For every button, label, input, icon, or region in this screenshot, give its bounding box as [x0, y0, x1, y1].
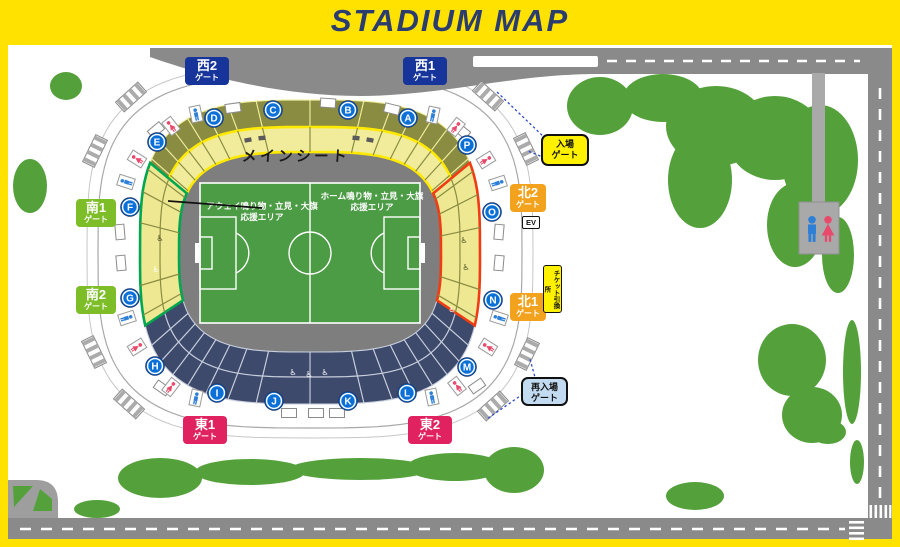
- section-letter: M: [463, 363, 471, 374]
- section-marker-H: H: [146, 357, 165, 376]
- home-area-label-line1: ホーム鳴り物・立見・大旗: [321, 190, 424, 201]
- section-letter: I: [216, 389, 219, 400]
- section-letter: F: [127, 203, 133, 214]
- wheelchair-seat-icon: ♿: [321, 368, 328, 377]
- gate-north1: 北1ゲート: [510, 293, 546, 321]
- section-marker-E: E: [148, 133, 167, 152]
- section-marker-A: A: [399, 109, 418, 128]
- section-letter: O: [488, 208, 496, 219]
- kiosk: [494, 224, 504, 240]
- section-marker-C: C: [264, 101, 283, 120]
- section-marker-M: M: [458, 358, 477, 377]
- kiosk: [309, 409, 324, 418]
- map-canvas: ♿♿♿♿♿♿♿♿ ABCDEFGHIJKLMNOP メインシート アウェイ鳴り物…: [0, 0, 900, 547]
- wheelchair-seat-icon: ♿: [305, 370, 312, 379]
- tree: [758, 324, 826, 396]
- section-letter: G: [126, 294, 134, 305]
- wheelchair-seat-icon: ♿: [462, 263, 469, 272]
- tree: [118, 458, 202, 498]
- section-letter: H: [151, 362, 158, 373]
- tree: [850, 440, 864, 484]
- ticket-exchange-plate: チケット引換所: [543, 265, 562, 313]
- gate-east2: 東2ゲート: [408, 416, 452, 444]
- section-marker-B: B: [339, 101, 358, 120]
- tree: [666, 482, 724, 510]
- section-marker-K: K: [339, 392, 358, 411]
- section-letter: E: [154, 138, 161, 149]
- home-area-label-line2: 応援エリア: [351, 201, 394, 212]
- kiosk: [320, 98, 336, 108]
- section-marker-G: G: [121, 289, 140, 308]
- section-letter: N: [489, 296, 496, 307]
- section-marker-D: D: [205, 109, 224, 128]
- elevator-plate: EV: [522, 216, 540, 229]
- goal-left: [195, 243, 200, 263]
- wheelchair-seat-icon: ♿: [460, 236, 467, 245]
- wheelchair-seat-icon: ♿: [448, 305, 455, 314]
- kiosk: [330, 409, 345, 418]
- away-supporters-section: [140, 163, 187, 326]
- stadium-map: STADIUM MAP: [0, 0, 900, 547]
- home-supporters-section: [433, 163, 480, 326]
- tree: [74, 500, 120, 518]
- section-letter: C: [269, 106, 276, 117]
- away-area-label-line2: 応援エリア: [241, 211, 284, 222]
- section-marker-P: P: [458, 136, 477, 155]
- section-marker-N: N: [484, 291, 503, 310]
- gate-east1: 東1ゲート: [183, 416, 227, 444]
- wheelchair-seat-icon: ♿: [156, 234, 163, 243]
- section-letter: K: [344, 397, 352, 408]
- gate-west1: 西1ゲート: [403, 57, 447, 85]
- section-letter: D: [210, 114, 217, 125]
- main-seat-label: メインシート: [242, 149, 351, 165]
- page-title: STADIUM MAP: [0, 3, 900, 39]
- tree: [843, 320, 861, 424]
- goal-right: [420, 243, 425, 263]
- restroom-path: [812, 73, 825, 205]
- gate-south1: 南1ゲート: [76, 199, 116, 227]
- section-marker-J: J: [265, 392, 284, 411]
- tree: [668, 132, 732, 228]
- section-marker-I: I: [208, 384, 227, 403]
- tree: [13, 159, 47, 213]
- tree: [50, 72, 82, 100]
- kiosk: [494, 255, 504, 271]
- entrance-gate-plate: 入場 ゲート: [541, 134, 589, 166]
- wheelchair-seat-icon: ♿: [152, 265, 159, 274]
- section-letter: A: [404, 114, 411, 125]
- gate-north2: 北2ゲート: [510, 184, 546, 212]
- section-letter: P: [464, 141, 471, 152]
- gate-west2: 西2ゲート: [185, 57, 229, 85]
- kiosk: [282, 409, 297, 418]
- section-letter: J: [271, 397, 277, 408]
- road-overpass: [473, 56, 598, 67]
- tree: [484, 447, 544, 493]
- reentry-gate-plate: 再入場 ゲート: [521, 377, 568, 406]
- kiosk: [225, 102, 241, 113]
- section-letter: L: [404, 389, 410, 400]
- kiosk: [115, 224, 125, 240]
- gate-south2: 南2ゲート: [76, 286, 116, 314]
- camera-platform-icon: [258, 135, 265, 140]
- wheelchair-seat-icon: ♿: [289, 368, 296, 377]
- section-marker-O: O: [483, 203, 502, 222]
- tree: [810, 420, 846, 444]
- restroom-box: [799, 202, 839, 254]
- ramp-loop: [8, 480, 58, 518]
- section-letter: B: [344, 106, 351, 117]
- kiosk: [116, 255, 126, 271]
- camera-platform-icon: [352, 135, 359, 140]
- section-marker-F: F: [121, 198, 140, 217]
- tree: [195, 459, 305, 485]
- road-right: [868, 48, 892, 539]
- tree: [567, 77, 633, 135]
- section-marker-L: L: [398, 384, 417, 403]
